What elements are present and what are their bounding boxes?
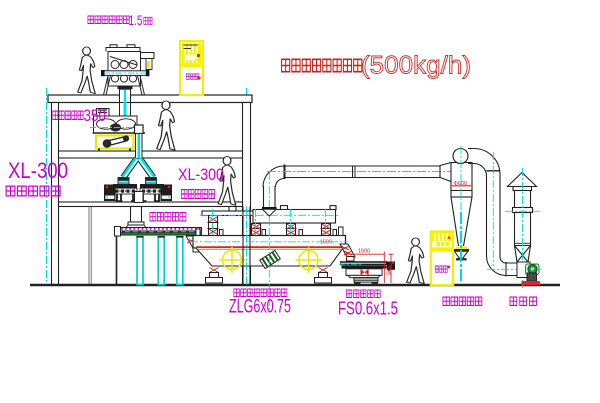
svg-text:Φ600: Φ600 (454, 181, 468, 187)
svg-text:1500: 1500 (320, 240, 332, 246)
svg-text:ZLG6x0.75: ZLG6x0.75 (229, 297, 291, 318)
svg-text:1500: 1500 (358, 249, 370, 255)
svg-text:1.5: 1.5 (129, 13, 143, 28)
svg-text:FS0.6x1.5: FS0.6x1.5 (338, 298, 398, 319)
svg-text:XL-300: XL-300 (178, 165, 224, 184)
svg-text:XL-300: XL-300 (8, 158, 68, 183)
svg-text:350: 350 (84, 106, 107, 125)
svg-text:(500kg/h): (500kg/h) (361, 52, 471, 80)
svg-text:545: 545 (387, 266, 393, 275)
